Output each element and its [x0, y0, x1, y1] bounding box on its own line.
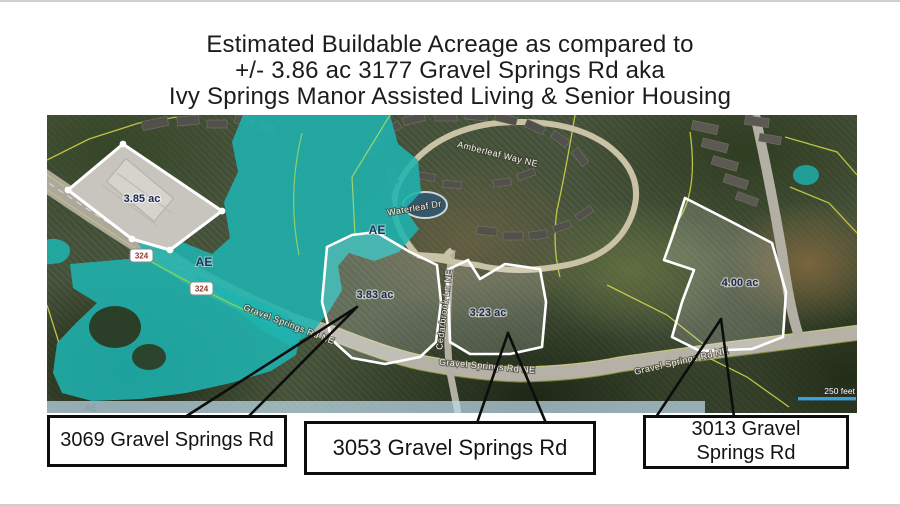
callout-3069: 3069 Gravel Springs Rd: [47, 415, 287, 467]
ae-zone-label: AE: [369, 223, 386, 237]
callout-3053: 3053 Gravel Springs Rd: [304, 421, 596, 475]
acreage-label-400: 4.00 ac: [722, 277, 759, 289]
acreage-label-323: 3.23 ac: [470, 307, 507, 319]
route-324-shield: 324: [130, 249, 153, 262]
ae-zone-label-faint: AE: [85, 403, 97, 413]
small-pond: [793, 165, 819, 185]
acreage-label-385: 3.85 ac: [124, 193, 161, 205]
map-scale: 250 feet: [798, 386, 856, 400]
callout-3013: 3013 Gravel Springs Rd: [643, 415, 849, 469]
callout-3069-label: 3069 Gravel Springs Rd: [60, 429, 273, 453]
flood-band: [47, 401, 705, 413]
street-label-amberleaf: Amberleaf Way NE: [456, 139, 539, 169]
svg-text:250 feet: 250 feet: [824, 386, 855, 396]
ae-zone-label: AE: [196, 255, 213, 269]
title-line-1: Estimated Buildable Acreage as compared …: [0, 32, 900, 58]
slide-title: Estimated Buildable Acreage as compared …: [0, 32, 900, 110]
parcel-3013-outline: [664, 198, 786, 351]
title-line-3: Ivy Springs Manor Assisted Living & Seni…: [0, 84, 900, 110]
svg-text:324: 324: [195, 285, 209, 294]
slide: Estimated Buildable Acreage as compared …: [0, 0, 900, 506]
acreage-label-383: 3.83 ac: [357, 289, 394, 301]
route-324-shield: 324: [190, 282, 213, 295]
callout-3013-label: 3013 Gravel Springs Rd: [670, 418, 822, 465]
title-line-2: +/- 3.86 ac 3177 Gravel Springs Rd aka: [0, 58, 900, 84]
aerial-map: 324 324 AE AE AE Gravel Springs Rd NE Gr…: [47, 115, 857, 413]
svg-text:324: 324: [135, 252, 149, 261]
map-graphics: 324 324 AE AE AE Gravel Springs Rd NE Gr…: [47, 115, 857, 413]
callout-3053-label: 3053 Gravel Springs Rd: [333, 435, 568, 461]
